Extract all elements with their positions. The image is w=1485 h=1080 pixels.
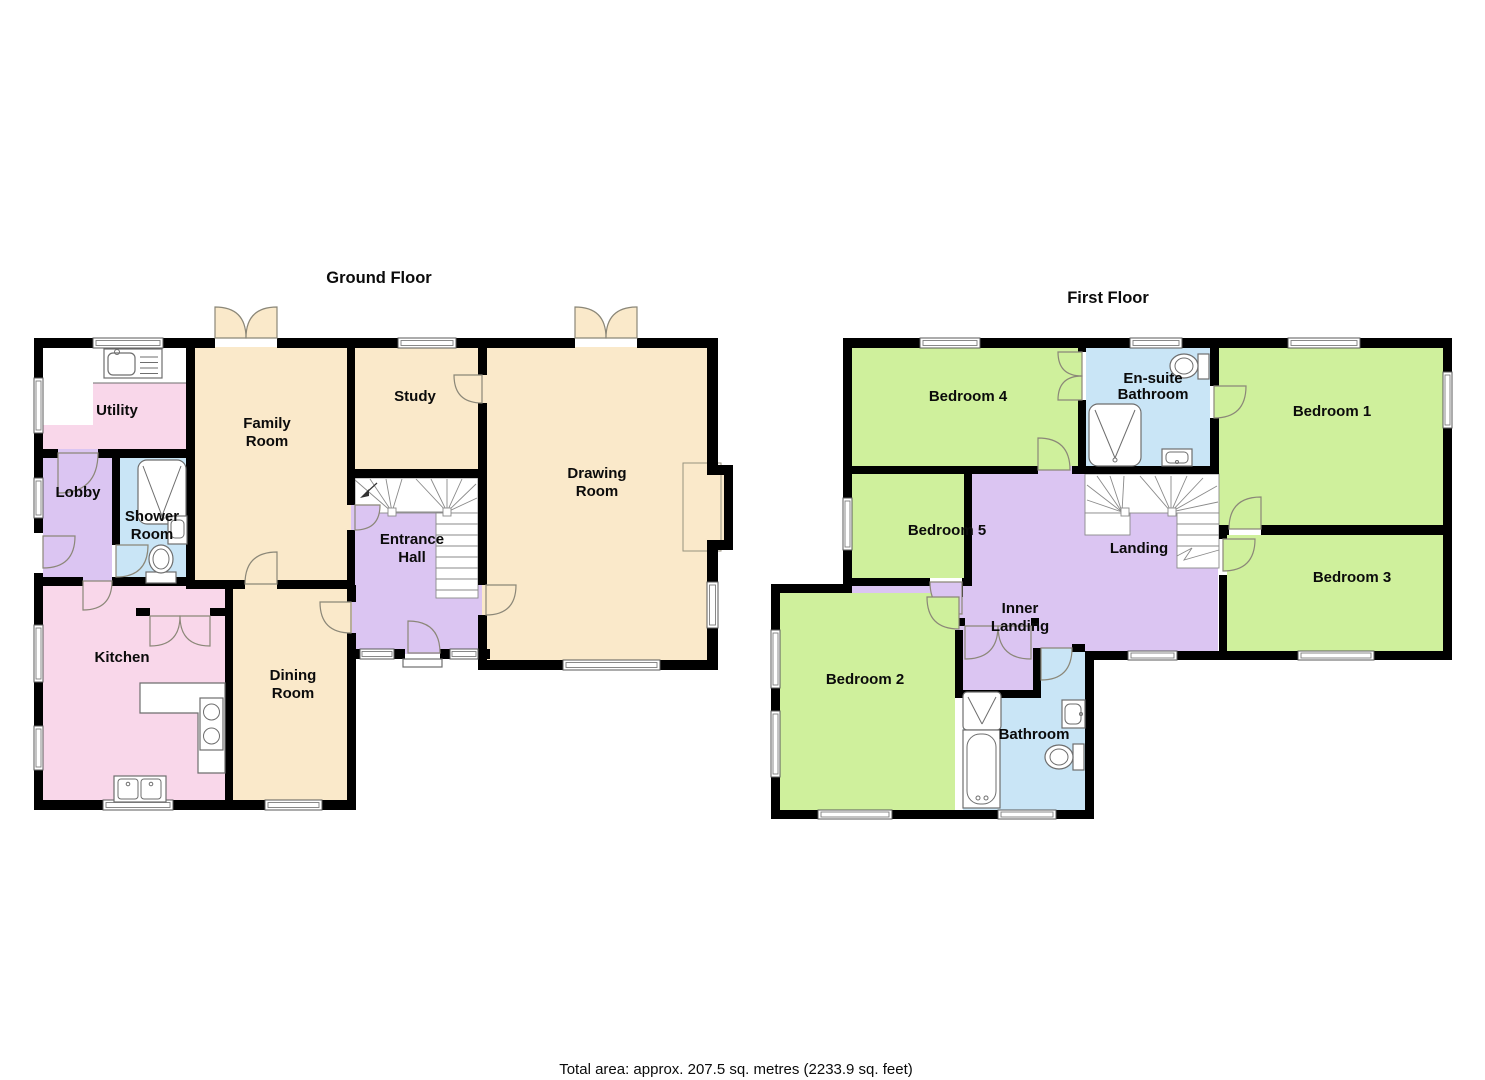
family-room-label-2: Room bbox=[246, 433, 289, 450]
landing-label: Landing bbox=[1110, 540, 1168, 557]
dining-room-label-2: Room bbox=[272, 685, 315, 702]
window bbox=[1443, 372, 1452, 428]
floorplan-page: Ground Floor Utility Lobby Shower Room F… bbox=[0, 0, 1485, 1080]
french-door-drawing-left bbox=[575, 307, 606, 338]
window bbox=[563, 660, 660, 670]
window bbox=[1128, 651, 1177, 660]
entrance-hall-label-1: Entrance bbox=[380, 531, 444, 548]
window bbox=[843, 498, 852, 550]
window bbox=[998, 810, 1056, 819]
window bbox=[771, 711, 780, 777]
ground-floor-title: Ground Floor bbox=[326, 269, 432, 287]
utility-label: Utility bbox=[96, 402, 138, 419]
drawing-room-label-1: Drawing bbox=[567, 465, 626, 482]
ensuite-shower-icon bbox=[1089, 404, 1141, 466]
room-drawing bbox=[482, 347, 715, 665]
hob-icon bbox=[200, 698, 223, 750]
first-floor-plan: First Floor Bedroom 4 En-suite Bathroom … bbox=[771, 289, 1452, 819]
inner-landing-label-2: Landing bbox=[991, 618, 1049, 635]
floorplan-canvas: Ground Floor Utility Lobby Shower Room F… bbox=[0, 0, 1485, 1080]
bathroom-toilet-icon bbox=[1045, 744, 1084, 770]
bedroom-3-label: Bedroom 3 bbox=[1313, 569, 1391, 586]
bath-icon bbox=[963, 730, 1000, 808]
entrance-hall-label-2: Hall bbox=[398, 549, 426, 566]
ensuite-sink-icon bbox=[1162, 449, 1192, 466]
window bbox=[771, 630, 780, 688]
bedroom-4-label: Bedroom 4 bbox=[929, 388, 1008, 405]
room-bedroom-2 bbox=[780, 593, 955, 810]
ground-floor-plan: Ground Floor Utility Lobby Shower Room F… bbox=[34, 269, 733, 810]
study-label: Study bbox=[394, 388, 436, 405]
room-study bbox=[355, 347, 482, 472]
window bbox=[34, 478, 43, 518]
lobby-label: Lobby bbox=[56, 484, 102, 501]
ensuite-label-1: En-suite bbox=[1123, 370, 1182, 387]
dining-room-label-1: Dining bbox=[270, 667, 317, 684]
shower-room-label-1: Shower bbox=[125, 508, 179, 525]
bathroom-shower-icon bbox=[963, 692, 1001, 730]
window bbox=[34, 625, 43, 682]
first-floor-title: First Floor bbox=[1067, 289, 1149, 307]
bedroom-2-label: Bedroom 2 bbox=[826, 671, 904, 688]
window bbox=[1130, 338, 1182, 348]
window bbox=[450, 649, 478, 659]
bedroom-5-label: Bedroom 5 bbox=[908, 522, 986, 539]
ensuite-label-2: Bathroom bbox=[1118, 386, 1189, 403]
utility-corner bbox=[43, 347, 93, 425]
window bbox=[707, 582, 718, 628]
french-door-family-right bbox=[246, 307, 277, 338]
shower-room-label-2: Room bbox=[131, 526, 174, 543]
room-bedroom-3 bbox=[1227, 535, 1443, 651]
total-area-text: Total area: approx. 207.5 sq. metres (22… bbox=[559, 1061, 913, 1078]
window bbox=[360, 649, 394, 659]
window bbox=[1288, 338, 1360, 348]
bedroom-1-label: Bedroom 1 bbox=[1293, 403, 1371, 420]
window bbox=[920, 338, 980, 348]
front-door-sill bbox=[403, 659, 442, 667]
bathroom-sink-icon bbox=[1062, 700, 1085, 728]
inner-landing-label-1: Inner bbox=[1002, 600, 1039, 617]
kitchen-sink-icon bbox=[114, 776, 166, 802]
window bbox=[34, 378, 43, 433]
window bbox=[93, 338, 163, 348]
kitchen-label: Kitchen bbox=[94, 649, 149, 666]
window bbox=[34, 726, 43, 770]
window bbox=[1298, 651, 1374, 660]
window bbox=[818, 810, 892, 819]
drawing-room-label-2: Room bbox=[576, 483, 619, 500]
french-door-drawing-right bbox=[606, 307, 637, 338]
french-door-family-left bbox=[215, 307, 246, 338]
bathroom-label: Bathroom bbox=[999, 726, 1070, 743]
window bbox=[265, 800, 322, 810]
room-family bbox=[186, 347, 355, 585]
window bbox=[398, 338, 456, 348]
family-room-label-1: Family bbox=[243, 415, 291, 432]
